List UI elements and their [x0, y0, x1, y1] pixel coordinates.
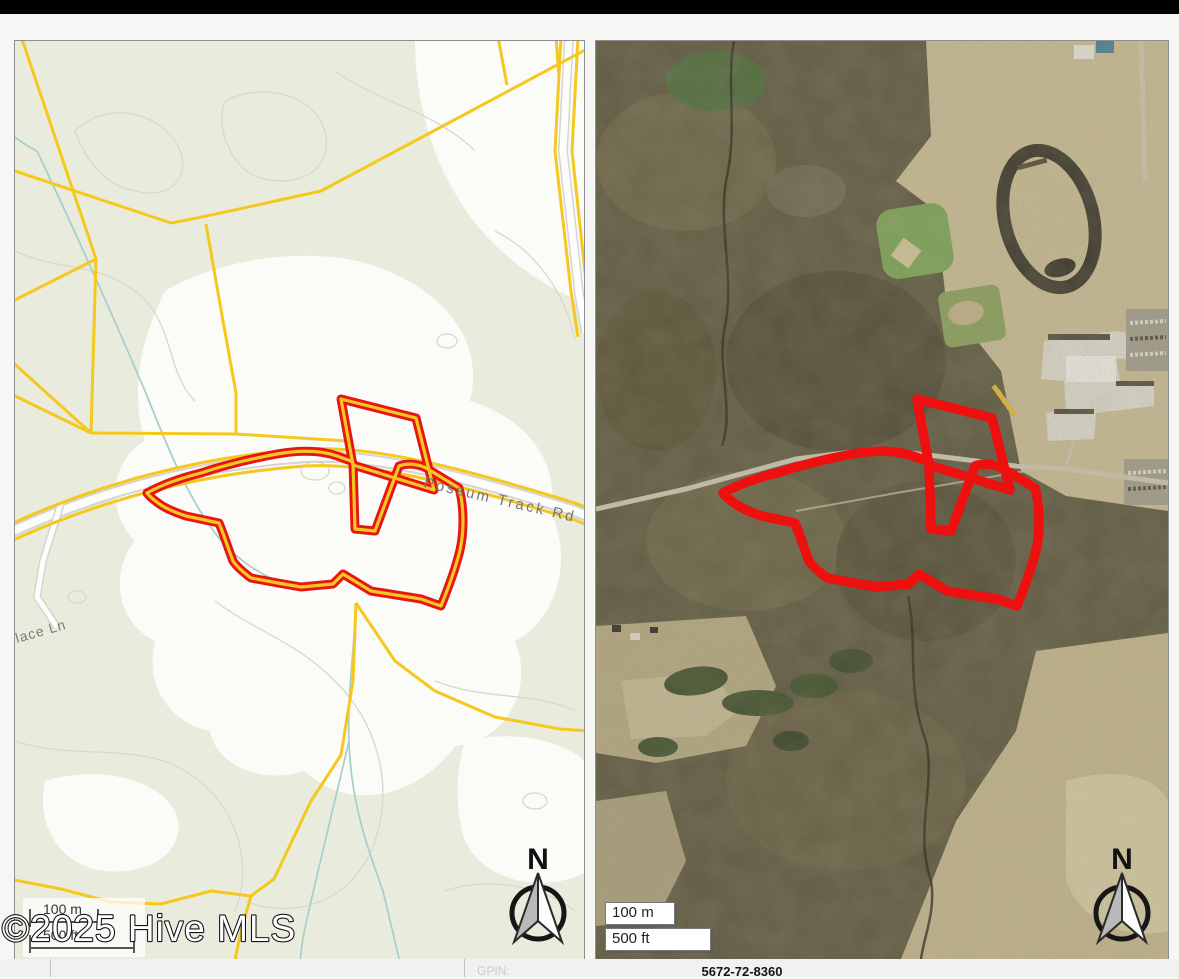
gpin-label: GPIN: — [477, 964, 510, 978]
right-north-arrow: N — [1084, 843, 1160, 953]
scalebar-imperial-line — [29, 943, 135, 953]
mls-map-collage: { "page": { "top_bar_color": "#000000", … — [0, 0, 1179, 977]
scalebar-metric-label: 100 m — [29, 902, 99, 917]
left-scalebar: 100 m 500 ft — [23, 898, 145, 957]
cell-divider — [464, 959, 465, 977]
scalebar-imperial-box: 500 ft — [605, 928, 711, 951]
right-scalebar: 100 m 500 ft — [605, 899, 711, 951]
fine-texture — [596, 41, 1168, 959]
top-black-bar — [0, 0, 1179, 14]
scalebar-imperial-label: 500 ft — [612, 930, 650, 947]
scalebar-imperial-label: 500 ft — [29, 928, 135, 943]
scalebar-metric-box: 100 m — [605, 902, 675, 925]
parcel-map-image: Possum Track Rd lace Ln — [15, 41, 584, 959]
left-north-arrow: N — [500, 843, 576, 953]
scalebar-imperial-row: 500 ft — [29, 928, 135, 953]
aerial-map-image — [596, 41, 1168, 959]
parcel-map-panel: Possum Track Rd lace Ln 100 m 500 ft N — [14, 40, 585, 960]
property-details-row: GPIN: 5672-72-8360 — [0, 959, 1179, 977]
north-letter: N — [1111, 843, 1133, 876]
aerial-map-panel: 100 m 500 ft N — [595, 40, 1169, 960]
north-arrow-icon: N — [500, 843, 576, 953]
north-arrow-icon: N — [1084, 843, 1160, 953]
scalebar-metric-row: 100 m — [29, 902, 99, 927]
scalebar-metric-label: 100 m — [612, 904, 654, 921]
cell-divider — [50, 959, 51, 977]
north-letter: N — [527, 843, 549, 876]
scalebar-metric-line — [29, 917, 99, 927]
